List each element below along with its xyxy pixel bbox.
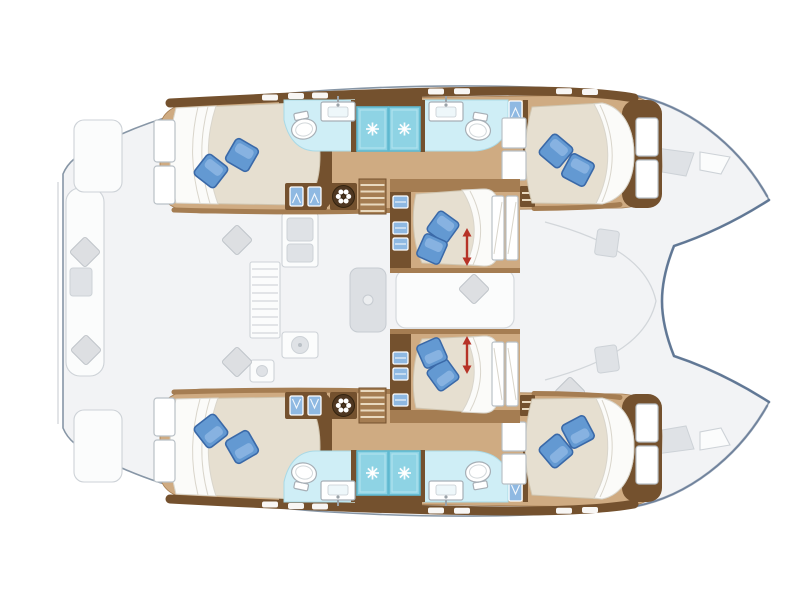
shower — [389, 107, 420, 151]
wardrobe-panel — [636, 118, 658, 156]
center-cabin — [390, 179, 520, 273]
bathroom-locker — [509, 101, 522, 120]
cabin-door-panel — [502, 151, 526, 180]
galley-sink — [287, 218, 313, 241]
drum-unit — [333, 186, 355, 208]
shower — [357, 107, 388, 151]
shower-top-wall — [355, 94, 422, 108]
cabin-door-panel — [502, 118, 526, 148]
cabin-hatch — [393, 222, 408, 234]
aft-cockpit — [66, 188, 104, 376]
hull-inboard-wall — [174, 210, 390, 212]
center-cabin-header-wall — [390, 179, 520, 192]
cabinet-door — [308, 187, 321, 206]
catamaran-floorplan: Catamaran yacht deck and cabin layout fl… — [0, 0, 800, 600]
catamaran-floorplan-page: Catamaran yacht deck and cabin layout fl… — [0, 0, 800, 600]
galley-stove-knob — [298, 343, 302, 347]
cabin-hatch — [393, 238, 408, 250]
cabin-hatch — [393, 196, 408, 208]
hull-window — [154, 166, 175, 204]
hull-bathrooms — [284, 94, 528, 157]
salon-sofa — [396, 270, 514, 328]
hull-window — [154, 120, 175, 162]
galley-sink — [287, 244, 313, 262]
salon-table-detail — [363, 295, 373, 305]
wardrobe-panel — [636, 160, 658, 198]
cockpit-table — [70, 268, 92, 296]
galley-oven-dial — [257, 366, 268, 377]
cockpit-corner-lounger — [74, 120, 122, 192]
center-cabin-foot-wall — [390, 268, 520, 273]
cabinet-door — [290, 187, 303, 206]
deck-locker — [594, 229, 619, 258]
galley-louver-hatch — [250, 262, 280, 338]
